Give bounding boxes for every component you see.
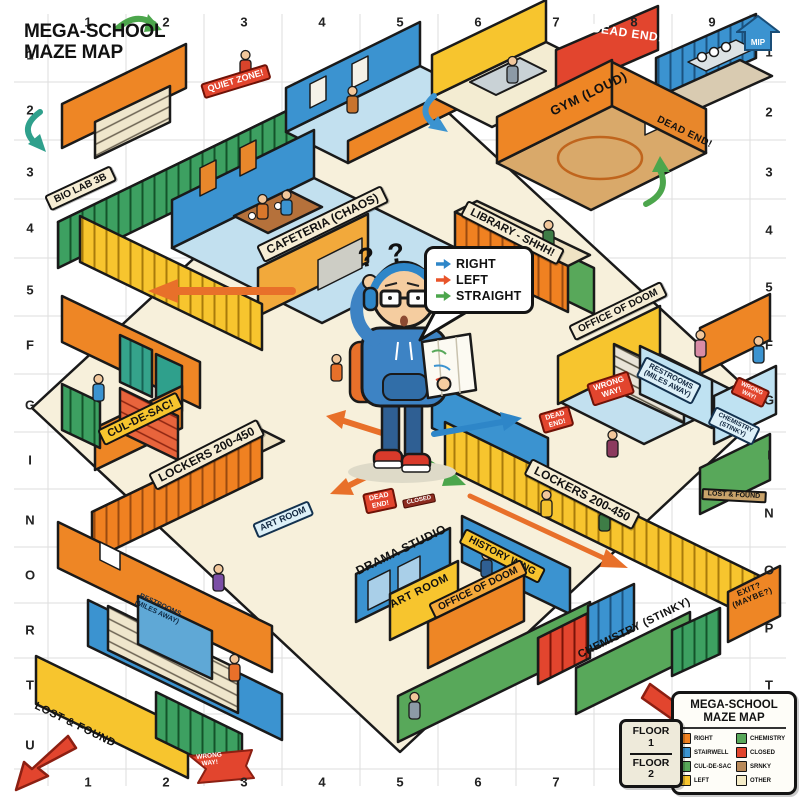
- grid-top-7: 7: [552, 15, 559, 30]
- map-legend: MEGA-SCHOOL MAZE MAP RIGHTSTAIRWELLCUL-D…: [671, 691, 797, 795]
- grid-top-4: 4: [318, 15, 325, 30]
- map-title-line2: MAZE MAP: [24, 43, 165, 64]
- grid-left-2: 2: [26, 103, 33, 118]
- legend-divider: [682, 727, 786, 729]
- grid-bottom-1: 1: [84, 775, 91, 790]
- legend-swatch-chemistry: [736, 733, 747, 744]
- legend-item-left-1: STAIRWELL: [680, 747, 732, 758]
- grid-bottom-7: 7: [552, 775, 559, 790]
- direction-arrow-icon: [436, 291, 451, 301]
- grid-top-6: 6: [474, 15, 481, 30]
- grid-right-4: 4: [765, 223, 772, 238]
- grid-left-10: O: [25, 568, 35, 583]
- map-title-line1: MEGA-SCHOOL: [24, 22, 165, 43]
- legend-label: SRNKY: [750, 764, 771, 770]
- direction-arrow-icon: [436, 275, 451, 285]
- legend-title-line2: MAZE MAP: [680, 712, 788, 725]
- compass-label: MIP: [736, 38, 780, 47]
- speech-direction-right: RIGHT: [436, 257, 522, 271]
- legend-item-left-3: LEFT: [680, 775, 732, 786]
- grid-left-12: T: [26, 678, 34, 693]
- legend-label: CLOSED: [750, 750, 775, 756]
- floor-2-label: FLOOR 2: [624, 758, 678, 782]
- grid-bottom-4: 4: [318, 775, 325, 790]
- grid-left-4: 4: [26, 221, 33, 236]
- grid-bottom-2: 2: [162, 775, 169, 790]
- compass-north-arrow: MIP: [736, 14, 780, 52]
- legend-item-left-0: RIGHT: [680, 733, 732, 744]
- grid-bottom-3: 3: [240, 775, 247, 790]
- grid-left-6: F: [26, 338, 34, 353]
- legend-swatch-other: [736, 775, 747, 786]
- maze-map: MEGA-SCHOOL MAZE MAP 1234567891234567891…: [0, 0, 800, 800]
- legend-label: CUL-DE-SAC: [694, 764, 731, 770]
- direction-label: LEFT: [456, 273, 488, 287]
- grid-top-3: 3: [240, 15, 247, 30]
- grid-right-11: P: [765, 621, 774, 636]
- legend-item-right-0: CHEMISTRY: [736, 733, 788, 744]
- direction-label: RIGHT: [456, 257, 496, 271]
- grid-left-7: G: [25, 398, 35, 413]
- grid-top-5: 5: [396, 15, 403, 30]
- floor-indicator: FLOOR 1 FLOOR 2: [619, 719, 683, 788]
- floor-1-label: FLOOR 1: [624, 726, 678, 750]
- legend-label: CHEMISTRY: [750, 736, 785, 742]
- grid-right-8: I: [767, 448, 771, 463]
- speech-direction-straight: STRAIGHT: [436, 289, 522, 303]
- grid-right-5: 5: [765, 280, 772, 295]
- legend-label: STAIRWELL: [694, 750, 728, 756]
- grid-left-5: 5: [26, 283, 33, 298]
- legend-title: MEGA-SCHOOL MAZE MAP: [680, 699, 788, 724]
- legend-item-right-3: OTHER: [736, 775, 788, 786]
- speech-direction-left: LEFT: [436, 273, 522, 287]
- legend-item-right-1: CLOSED: [736, 747, 788, 758]
- legend-label: RIGHT: [694, 736, 713, 742]
- grid-right-9: N: [764, 506, 773, 521]
- wrong-way-flag-label: WRONG WAY!: [196, 751, 223, 768]
- grid-right-2: 2: [765, 105, 772, 120]
- legend-item-left-2: CUL-DE-SAC: [680, 761, 732, 772]
- legend-swatch-closed: [736, 747, 747, 758]
- grid-left-11: R: [25, 623, 34, 638]
- grid-right-3: 3: [765, 165, 772, 180]
- grid-bottom-5: 5: [396, 775, 403, 790]
- legend-title-line1: MEGA-SCHOOL: [680, 699, 788, 712]
- map-title: MEGA-SCHOOL MAZE MAP: [24, 22, 165, 63]
- legend-swatch-srnky: [736, 761, 747, 772]
- direction-arrow-icon: [436, 259, 451, 269]
- grid-left-13: U: [25, 738, 34, 753]
- grid-left-9: N: [25, 513, 34, 528]
- direction-label: STRAIGHT: [456, 289, 522, 303]
- grid-bottom-6: 6: [474, 775, 481, 790]
- speech-bubble: RIGHTLEFTSTRAIGHT: [424, 246, 534, 314]
- floor-divider: [630, 753, 672, 755]
- legend-label: OTHER: [750, 778, 771, 784]
- maze-illustration: [0, 0, 800, 800]
- grid-left-3: 3: [26, 165, 33, 180]
- legend-item-right-2: SRNKY: [736, 761, 788, 772]
- legend-label: LEFT: [694, 778, 709, 784]
- grid-left-8: I: [28, 453, 32, 468]
- grid-right-10: O: [764, 563, 774, 578]
- grid-right-6: F: [765, 338, 773, 353]
- grid-top-9: 9: [708, 15, 715, 30]
